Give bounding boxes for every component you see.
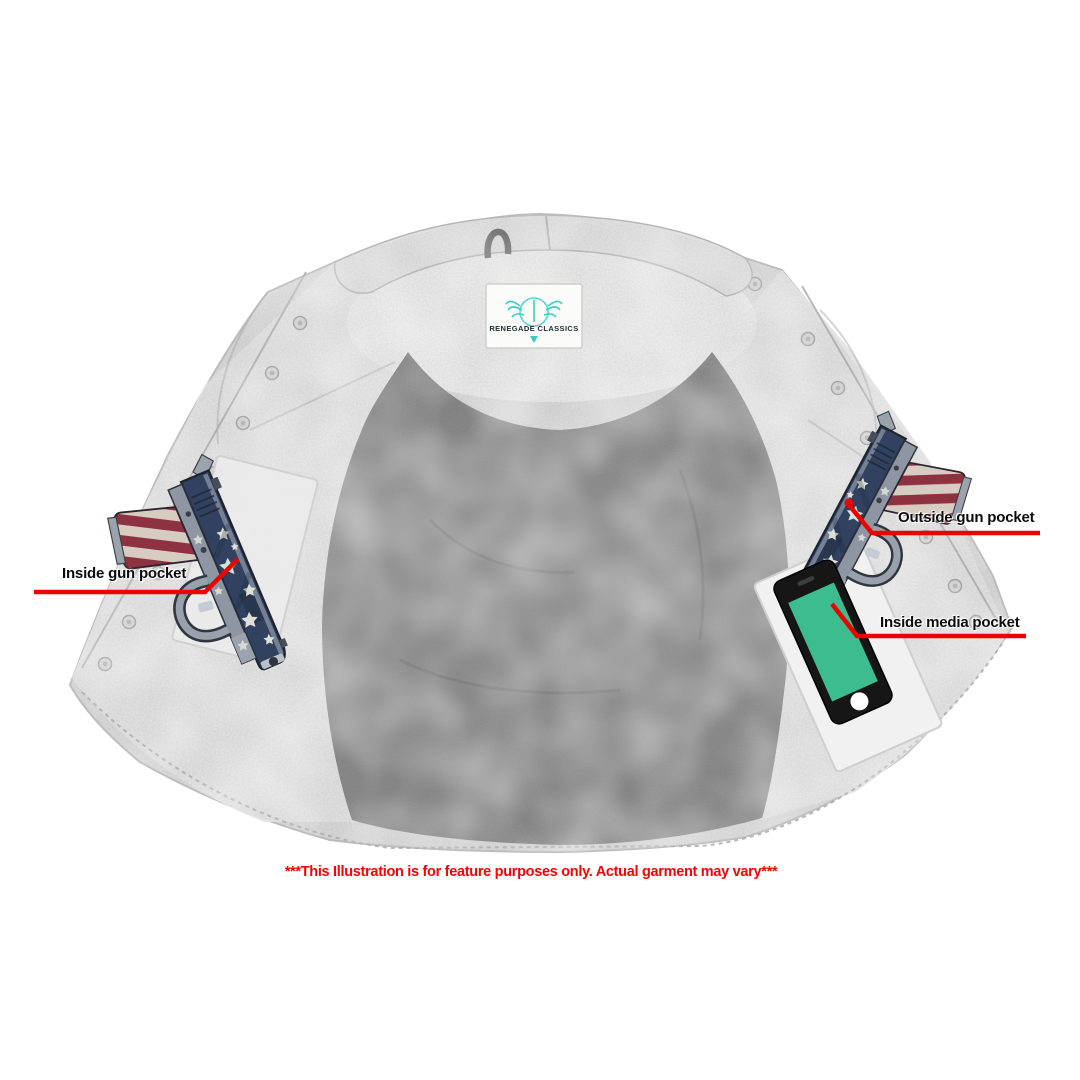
brand-label-tag bbox=[486, 284, 582, 348]
callout-label-inside-media-pocket: Inside media pocket bbox=[880, 614, 1020, 631]
disclaimer-text: ***This Illustration is for feature purp… bbox=[0, 864, 1062, 880]
brand-label-text: RENEGADE CLASSICS bbox=[486, 324, 582, 333]
callout-label-outside-gun-pocket: Outside gun pocket bbox=[898, 509, 1034, 526]
vest-illustration-canvas bbox=[0, 0, 1080, 1080]
product-feature-illustration: RENEGADE CLASSICS Inside gun pocket Outs… bbox=[0, 0, 1080, 1080]
callout-dot-outside-gun-pocket bbox=[845, 499, 854, 508]
callout-label-inside-gun-pocket: Inside gun pocket bbox=[62, 565, 186, 582]
